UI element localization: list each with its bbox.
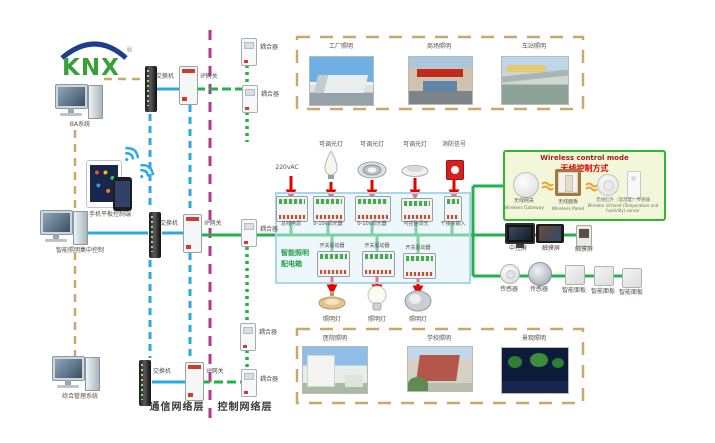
switch-label: 交换机 bbox=[149, 369, 175, 376]
knx-logo: KNX ® bbox=[56, 34, 134, 78]
temp-humidity-sensor-icon bbox=[627, 171, 641, 199]
spotlight-icon bbox=[404, 290, 432, 312]
wireless-infrared-sensor-icon bbox=[597, 174, 619, 196]
lan-blue-lines bbox=[88, 89, 190, 382]
fire-alarm-box-icon bbox=[446, 160, 464, 180]
dry-contact-module bbox=[444, 196, 462, 222]
dimmable-ceiling-lamp-icon bbox=[401, 163, 429, 177]
module-label: 0-10v调光器 bbox=[309, 222, 347, 228]
wireless-item-en: Wireless Gateway bbox=[498, 206, 550, 211]
wireless-item-zh: 无线网关 bbox=[502, 199, 546, 205]
wifi-icon bbox=[132, 161, 154, 181]
smart-panel-icon bbox=[565, 265, 585, 285]
ip-gateway-label: IP网关 bbox=[194, 74, 224, 81]
pc-tower bbox=[88, 85, 103, 119]
cabinet-title-line1: 智能照明 bbox=[281, 249, 321, 257]
module-label: 干接点输入 bbox=[436, 222, 470, 228]
power-in-label: 220vAC bbox=[268, 165, 306, 172]
wireless-item-en: Wireless infrared (Temperature and humid… bbox=[586, 204, 660, 213]
line-coupler bbox=[241, 219, 257, 247]
ba-system-label: BA系统 bbox=[50, 122, 110, 129]
module-label: 总线电源 bbox=[275, 222, 307, 228]
dimmable-candle-lamp-icon bbox=[324, 150, 338, 180]
ip-gateway-label: IP网关 bbox=[200, 369, 230, 376]
scene-label: 工厂照明 bbox=[312, 44, 370, 51]
monitor bbox=[55, 84, 88, 109]
load-label: 可调光灯 bbox=[316, 142, 346, 149]
ip-gateway bbox=[183, 214, 202, 253]
switch-actuator-module bbox=[403, 253, 436, 279]
management-computer bbox=[52, 356, 100, 393]
load-label: 可调光灯 bbox=[400, 142, 430, 149]
smart-panel-icon bbox=[594, 266, 614, 286]
lamp-label: 照明灯 bbox=[318, 317, 346, 324]
light-bulb-icon bbox=[367, 285, 387, 312]
ethernet-switch bbox=[139, 360, 151, 406]
coupler-label: 耦合器 bbox=[257, 45, 281, 52]
dimmer-module bbox=[313, 196, 345, 222]
scene-label: 商场照明 bbox=[410, 44, 468, 51]
load-label: 可调光灯 bbox=[357, 142, 387, 149]
switch-label: 交换机 bbox=[156, 221, 182, 228]
scene-label: 景观照明 bbox=[505, 336, 563, 343]
wireless-panel-icon bbox=[555, 169, 581, 196]
central-control-screen-icon bbox=[505, 223, 535, 244]
touch-panel-icon bbox=[576, 225, 592, 247]
lamp-label: 照明灯 bbox=[363, 317, 391, 324]
landscape-photo bbox=[501, 347, 569, 394]
management-system-label: 综合管理系统 bbox=[45, 394, 115, 401]
school-photo bbox=[407, 346, 473, 392]
sensor-icon bbox=[500, 264, 520, 284]
wireless-item-en: Wireless Panel bbox=[544, 207, 592, 212]
ba-system-computer bbox=[55, 84, 103, 121]
smart-panel-icon bbox=[622, 268, 642, 288]
module-label: 0-10v调光器 bbox=[353, 222, 391, 228]
line-coupler bbox=[241, 369, 257, 397]
factory-photo bbox=[309, 56, 374, 106]
switch-actuator-module bbox=[317, 251, 350, 277]
hospital-photo bbox=[302, 346, 368, 394]
wireless-title-en: Wireless control mode bbox=[505, 154, 664, 162]
ceiling-lamp-icon bbox=[318, 291, 346, 311]
device-label: 传感器 bbox=[527, 287, 551, 294]
device-label: 传感器 bbox=[497, 287, 521, 294]
svg-text:®: ® bbox=[126, 46, 133, 54]
scene-label: 车站照明 bbox=[505, 44, 563, 51]
smartphone-device bbox=[113, 177, 132, 211]
line-coupler bbox=[242, 85, 258, 113]
module-label: 开关驱动器 bbox=[359, 244, 395, 250]
ip-gateway bbox=[185, 362, 204, 401]
coupler-label: 耦合器 bbox=[257, 377, 281, 384]
mobile-control-label: 手机平板控制端 bbox=[70, 212, 150, 219]
ethernet-switch bbox=[149, 212, 161, 258]
ctrl-layer-label: 控制网络层 bbox=[214, 402, 276, 414]
coupler-label: 耦合器 bbox=[257, 227, 281, 234]
triac-dimmer-module bbox=[401, 198, 433, 222]
svg-text:KNX: KNX bbox=[62, 55, 120, 78]
switch-label: 交换机 bbox=[152, 74, 178, 81]
device-label: 触摸屏 bbox=[537, 246, 565, 253]
rf-signal-icon bbox=[541, 180, 554, 191]
switch-actuator-module bbox=[362, 251, 395, 277]
device-label: 智能面板 bbox=[559, 288, 589, 295]
cabinet-title-line2: 配电箱 bbox=[281, 260, 321, 268]
device-label: 智能面板 bbox=[616, 290, 646, 297]
lamp-label: 照明灯 bbox=[404, 317, 432, 324]
scene-label: 学校照明 bbox=[410, 336, 468, 343]
line-coupler bbox=[240, 323, 256, 351]
dimmer-module bbox=[355, 196, 391, 222]
device-label: 智能面板 bbox=[588, 289, 618, 296]
lighting-control-label: 智能照明集中控制 bbox=[30, 248, 130, 255]
mall-photo bbox=[408, 56, 473, 105]
ip-gateway bbox=[179, 66, 198, 105]
dimmable-downlight-icon bbox=[357, 160, 387, 180]
module-label: 开关驱动器 bbox=[400, 246, 436, 252]
module-label: 开关驱动器 bbox=[314, 244, 350, 250]
rf-signal-icon bbox=[585, 181, 598, 192]
line-coupler bbox=[241, 38, 257, 66]
station-photo bbox=[501, 56, 569, 105]
touch-screen-icon bbox=[536, 224, 564, 243]
coupler-label: 耦合器 bbox=[258, 92, 282, 99]
module-label: 可控硅调光 bbox=[398, 222, 434, 228]
fire-signal-label: 消防信号 bbox=[439, 142, 469, 149]
bus-power-module bbox=[276, 196, 308, 222]
wireless-gateway-icon bbox=[513, 172, 539, 198]
device-label: 中控屏 bbox=[504, 246, 532, 253]
scene-label: 医院照明 bbox=[306, 336, 364, 343]
knx-lighting-system-diagram: KNX ® BA系统 手机平板控制端 智能照明集中控制 综合管理系统 交换机 I… bbox=[0, 0, 715, 443]
ip-gateway-label: IP网关 bbox=[198, 221, 228, 228]
device-label: 触摸屏 bbox=[571, 247, 597, 254]
sensor-icon bbox=[528, 262, 552, 286]
coupler-label: 耦合器 bbox=[256, 330, 280, 337]
comm-layer-label: 通信网络层 bbox=[146, 402, 208, 414]
